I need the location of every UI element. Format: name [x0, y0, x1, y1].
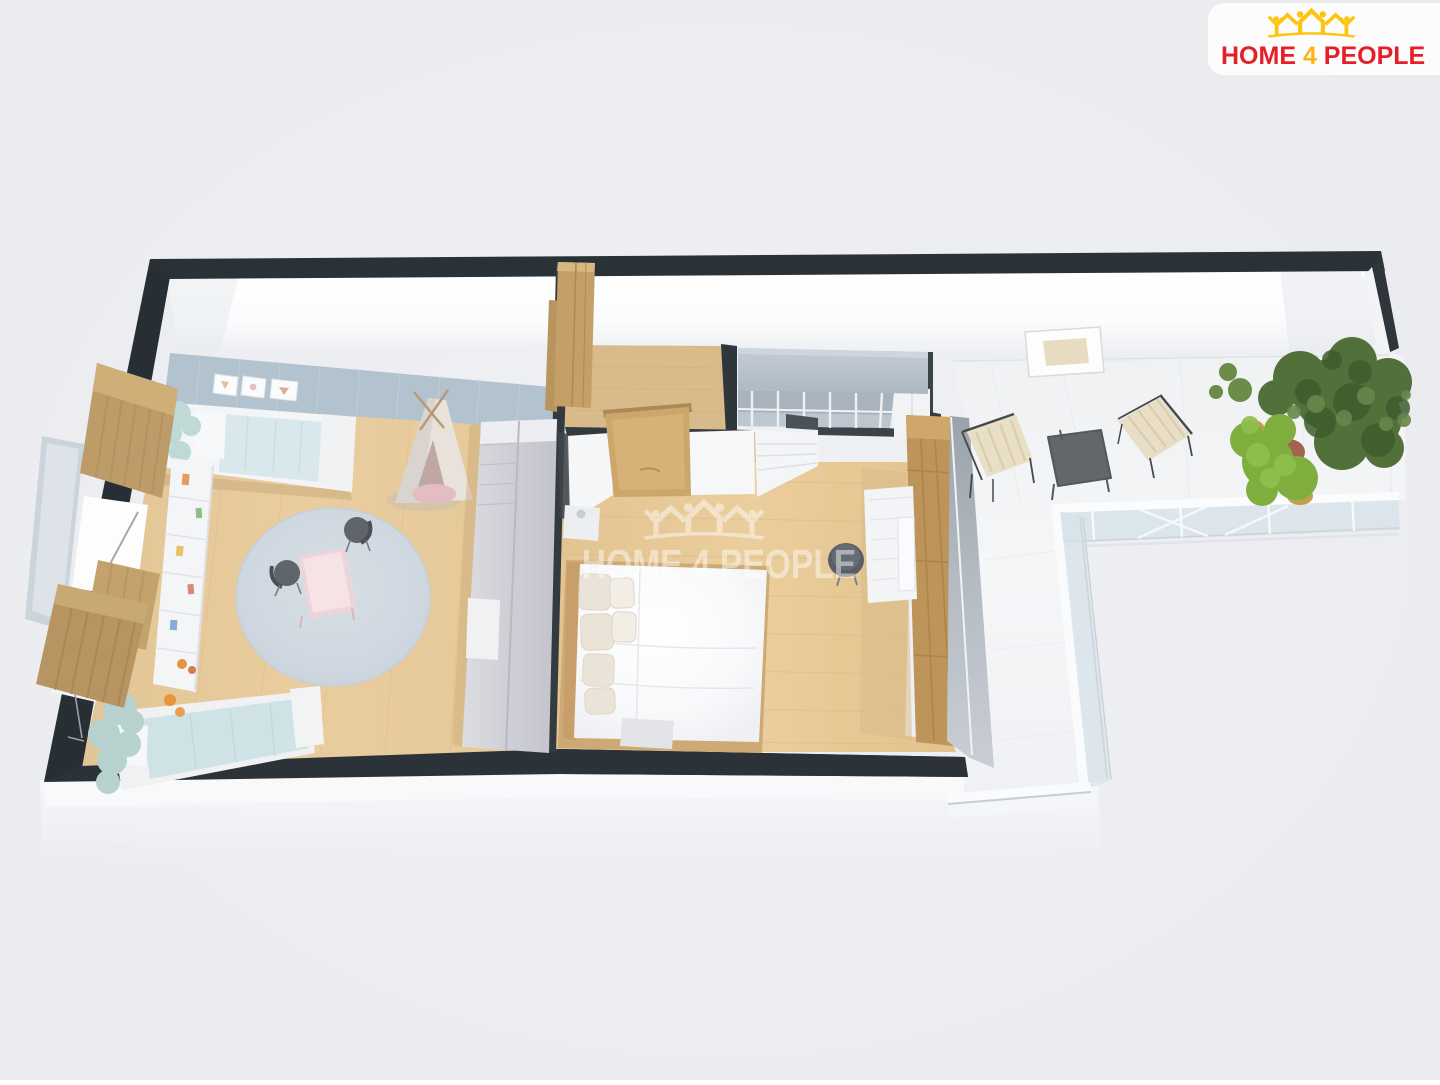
svg-text:HOME 4 PEOPLE: HOME 4 PEOPLE	[1221, 42, 1425, 70]
svg-text:HOME 4 PEOPLE: HOME 4 PEOPLE	[582, 541, 857, 587]
